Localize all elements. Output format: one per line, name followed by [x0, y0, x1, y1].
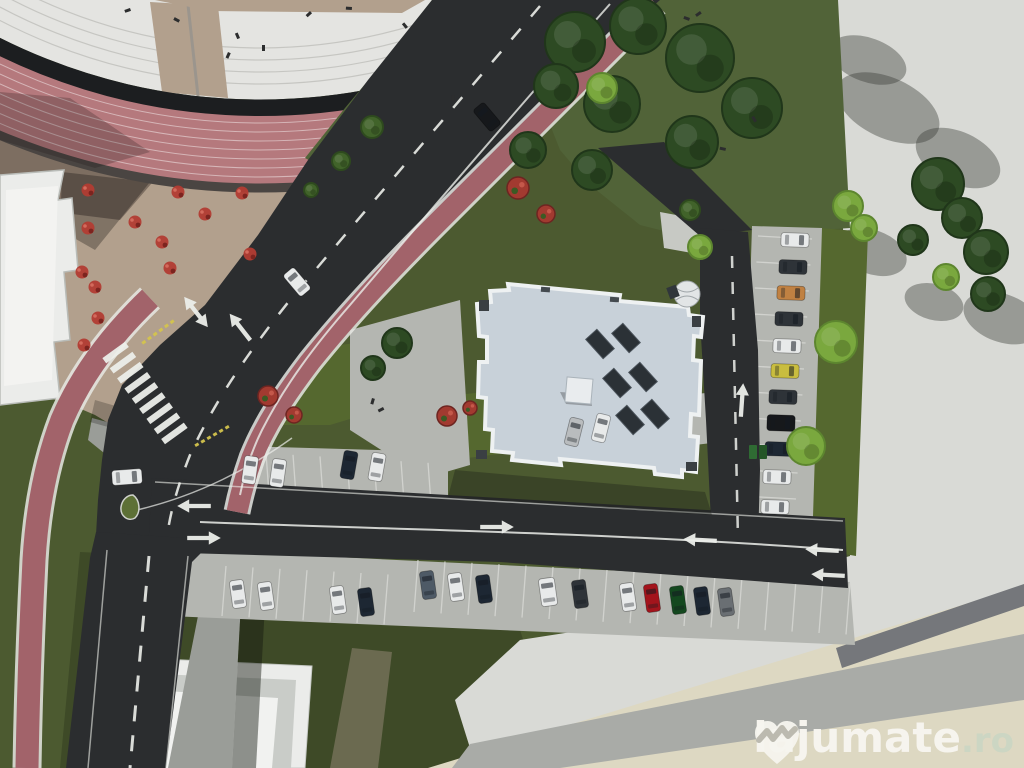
tree	[610, 0, 666, 54]
person	[262, 45, 265, 51]
tree	[510, 132, 546, 168]
flower-bush	[537, 205, 555, 223]
cafe-table-cluster	[82, 222, 95, 235]
tree	[680, 200, 700, 220]
cafe-table-cluster	[129, 216, 142, 229]
vehicle	[771, 364, 799, 379]
vehicle	[775, 312, 803, 327]
watermark: lajumate.ro	[753, 720, 1014, 756]
tree	[545, 12, 605, 72]
tree	[964, 230, 1008, 274]
tree	[787, 427, 825, 465]
cafe-table-cluster	[244, 248, 257, 261]
flower-bush	[507, 177, 529, 199]
vehicle	[773, 339, 801, 354]
heart-zigzag-icon	[753, 720, 801, 766]
flower-bush	[258, 386, 278, 406]
vehicle	[767, 415, 796, 432]
cafe-table-cluster	[199, 208, 212, 221]
tree	[815, 321, 857, 363]
flower-bush	[286, 407, 302, 423]
tree	[722, 78, 782, 138]
vehicle	[761, 500, 789, 515]
tree	[666, 116, 718, 168]
tree	[851, 215, 877, 241]
cafe-table-cluster	[78, 339, 91, 352]
vehicle	[538, 577, 558, 607]
flower-bush	[437, 406, 457, 426]
cafe-table-cluster	[76, 266, 89, 279]
tree	[572, 150, 612, 190]
cafe-table-cluster	[156, 236, 169, 249]
tree	[971, 277, 1005, 311]
cafe-table-cluster	[236, 187, 249, 200]
vehicle	[112, 468, 143, 485]
cafe-table-cluster	[92, 312, 105, 325]
tree	[587, 73, 617, 103]
tree	[534, 64, 578, 108]
vehicle	[781, 233, 809, 248]
tree	[304, 183, 318, 197]
tree	[688, 235, 712, 259]
vehicle	[777, 286, 805, 301]
tree	[898, 225, 928, 255]
tree	[361, 356, 385, 380]
tree	[382, 328, 412, 358]
tree	[361, 116, 383, 138]
vehicle	[779, 260, 807, 275]
cafe-table-cluster	[172, 186, 185, 199]
listing-photo-aerial-render: lajumate.ro	[0, 0, 1024, 768]
person	[346, 7, 352, 10]
brand-tld: .ro	[961, 721, 1014, 761]
cafe-table-cluster	[164, 262, 177, 275]
tree	[332, 152, 350, 170]
cafe-table-cluster	[82, 184, 95, 197]
scene-image	[0, 0, 1024, 768]
cafe-table-cluster	[89, 281, 102, 294]
vehicle	[769, 390, 797, 405]
tree	[933, 264, 959, 290]
vehicle	[763, 470, 791, 485]
tree	[666, 24, 734, 92]
flower-bush	[463, 401, 477, 415]
